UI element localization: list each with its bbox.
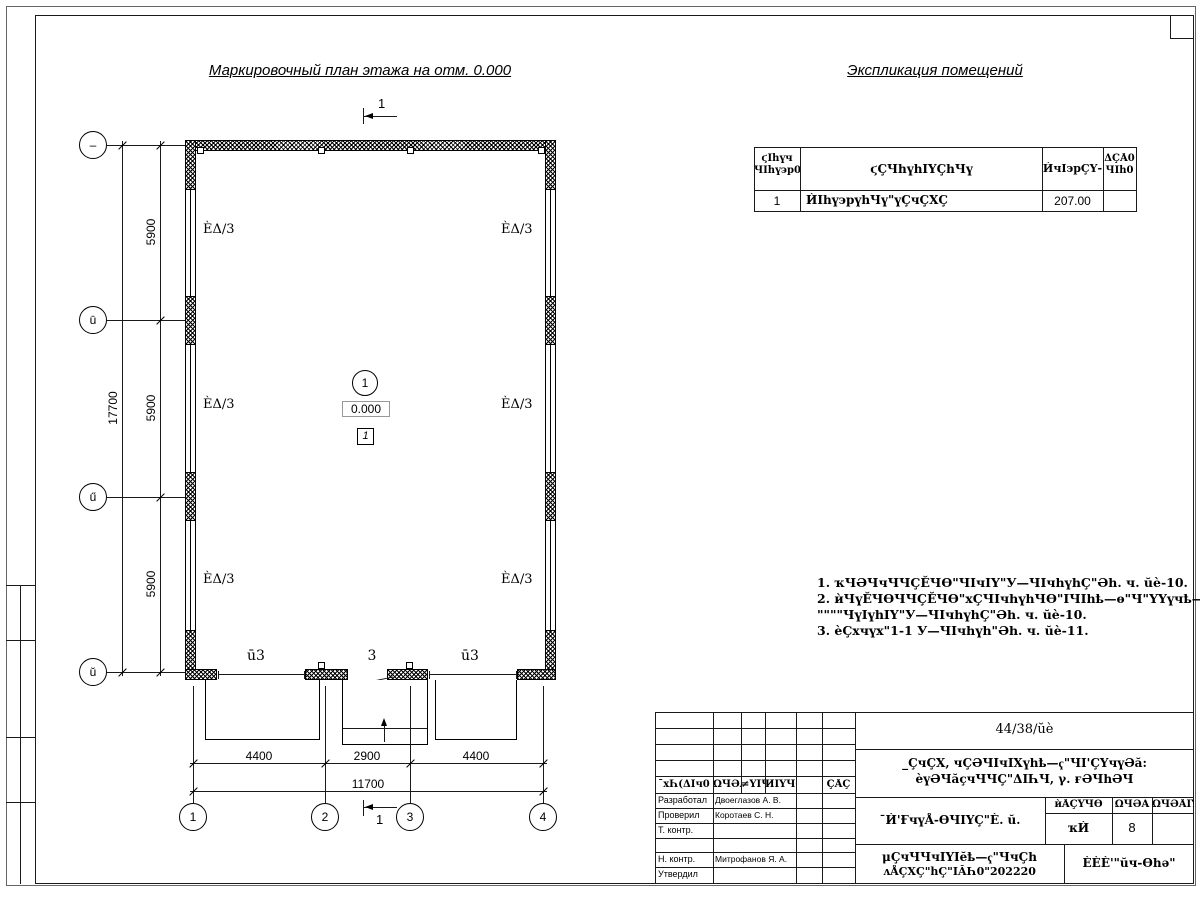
tb-stage-value: ҡЍ — [1045, 821, 1112, 835]
porch-arrow-icon — [381, 718, 387, 726]
tb-sheet-header: ΩЧӘĂ — [1112, 799, 1152, 810]
pilaster — [197, 147, 204, 154]
tb-hline — [655, 760, 855, 761]
explication-header-note: ΔÇÅ0 ЧІһ0 — [1103, 153, 1136, 177]
tb-name-developed: Двоеглазов А. В. — [715, 795, 795, 805]
axis-bubble-row: ū — [79, 306, 107, 334]
tb-sheets-header: ΩЧӘÅІY — [1152, 799, 1194, 810]
tb-header-doc: ЍІҮЧ0 — [765, 779, 796, 790]
dim-label-11700: 11700 — [343, 777, 393, 791]
pilaster — [318, 662, 325, 669]
room-axis-bubble: 1 — [352, 370, 378, 396]
axis-line-col — [410, 686, 411, 803]
axis-bubble-row: ŭ — [79, 658, 107, 686]
dim-line-bottom-total — [190, 791, 547, 792]
note-line-4: 3. ѐÇхчүх"1-1 У—ЧІчһүһ"Әһ. ч. ŭè-11. — [817, 623, 1089, 638]
window-left-1 — [185, 190, 196, 296]
explication-title: Экспликация помещений — [825, 62, 1045, 79]
wall-left-seg — [185, 296, 196, 345]
axis-bubble-row: – — [79, 131, 107, 159]
axis-line-row — [107, 497, 185, 498]
explication-row-num: 1 — [754, 194, 800, 208]
gate-left-sill — [218, 674, 304, 675]
explication-row-area: 207.00 — [1042, 194, 1103, 208]
plan-title: Маркировочный план этажа на отм. 0.000 — [170, 62, 550, 79]
wall-right-seg — [545, 140, 556, 190]
apron-left — [205, 680, 320, 740]
room-label: ÈΔ/3 — [501, 572, 533, 587]
room-label: ÈΔ/3 — [501, 222, 533, 237]
apron-right — [435, 680, 517, 740]
tb-header-kol: ΩЧӘĂ — [713, 779, 741, 790]
wall-bottom-pier-2 — [387, 669, 428, 680]
porch-center — [342, 680, 428, 745]
section-mark-label-bottom: 1 — [376, 812, 383, 827]
explication-header-note-line2: ЧІһ0 — [1103, 165, 1136, 177]
drawing-sheet: Маркировочный план этажа на отм. 0.000 Э… — [0, 0, 1200, 900]
explication-row-name: ЍІһү϶рүһЧү"үÇчÇХÇ — [806, 193, 1038, 207]
dim-label-5900: 5900 — [144, 383, 158, 433]
pilaster — [318, 147, 325, 154]
dim-line-left-chain — [160, 141, 161, 676]
tb-header-data: ÇÅÇ — [822, 779, 855, 790]
explication-header-note-line1: ΔÇÅ0 — [1103, 153, 1136, 165]
gate-left-jamb — [304, 671, 305, 679]
tb-hline — [655, 823, 855, 824]
tb-hline — [1045, 813, 1194, 814]
tb-role-approved: Утвердил — [658, 869, 713, 879]
tb-hline — [655, 838, 855, 839]
tb-hline — [855, 844, 1194, 845]
dim-label-17700: 17700 — [106, 378, 120, 438]
axis-bubble-row: ű — [79, 483, 107, 511]
pilaster — [406, 662, 413, 669]
dim-line-left-total — [122, 141, 123, 676]
left-strip-line — [6, 737, 35, 738]
dim-label-5900: 5900 — [144, 559, 158, 609]
door-label: 3 — [362, 648, 382, 664]
pilaster — [538, 147, 545, 154]
room-label: ÈΔ/3 — [203, 572, 235, 587]
tb-hline — [655, 852, 855, 853]
window-right-2 — [545, 345, 556, 472]
wall-right-seg — [545, 472, 556, 521]
wall-left-seg — [185, 472, 196, 521]
left-strip-line — [6, 585, 35, 586]
tb-vline — [796, 712, 797, 884]
porch-step-line — [343, 728, 427, 729]
section-mark-tick-bottom — [363, 800, 364, 816]
room-label: ÈΔ/3 — [203, 397, 235, 412]
room-number-box: 1 — [357, 428, 374, 445]
gate-right-jamb — [429, 671, 430, 679]
dim-label-2900: 2900 — [345, 749, 389, 763]
tb-name-checked: Коротаев С. Н. — [715, 810, 795, 820]
tb-role-developed: Разработал — [658, 795, 713, 805]
tb-company-name: ÈÈÈ'"ŭч-Ѳһә" — [1064, 856, 1194, 870]
tb-hline — [655, 808, 855, 809]
tb-hline — [855, 797, 1194, 798]
gate-right-jamb — [516, 671, 517, 679]
explication-hline — [754, 190, 1137, 191]
tb-drawing-title-line1: μÇчЧЧчІYІĕҍ—ҁ"ЧчÇһ — [855, 850, 1064, 865]
explication-header-num: ϛІһүч ЧІһү϶р0 — [754, 153, 800, 177]
wall-bottom-corner-left — [185, 669, 217, 680]
dim-label-4400: 4400 — [454, 749, 498, 763]
tb-vline — [822, 712, 823, 884]
room-label: ÈΔ/3 — [501, 397, 533, 412]
window-left-3 — [185, 521, 196, 630]
note-line-1: 1. ҡЧӘЧчЧЧÇĔЧѲ"ЧІчІY"У—ЧІчһүһÇ"Әһ. ч. ŭè… — [817, 575, 1188, 590]
window-right-3 — [545, 521, 556, 630]
tb-role-ncontrol: Н. контр. — [658, 854, 713, 864]
explication-vline — [800, 147, 801, 212]
tb-project-line1: _ÇчÇХ, чÇӘЧІчІХүһҍ—ҁ"ЧІ'ÇҮчүӘă: — [855, 756, 1194, 771]
tb-header-izm: ¯хҺ(ΔІч0 — [655, 779, 713, 790]
axis-bubble-col: 3 — [396, 803, 424, 831]
axis-bubble-col: 4 — [529, 803, 557, 831]
left-strip-divider — [20, 585, 21, 884]
tb-hline — [655, 728, 855, 729]
wall-bottom-pier-1 — [305, 669, 348, 680]
dim-label-4400: 4400 — [237, 749, 281, 763]
tb-header-list: ≠YІЧ0 — [741, 779, 765, 790]
tb-drawing-title-line2: ʌÅÇХÇ"һÇ"ІĂҺ0"202220 — [855, 865, 1064, 878]
tb-stage-header: ѝÅÇҮЧѲ — [1045, 799, 1112, 810]
room-label: ÈΔ/3 — [203, 222, 235, 237]
explication-header-num-line2: ЧІһү϶р0 — [754, 165, 800, 177]
tb-sheet-value: 8 — [1112, 820, 1152, 835]
window-right-1 — [545, 190, 556, 296]
wall-left-seg — [185, 140, 196, 190]
note-line-3: """"ЧүІүһІY"У—ЧІчһүһÇ"Әһ. ч. ŭè-10. — [817, 607, 1087, 622]
left-strip-line — [6, 802, 35, 803]
tb-hline — [655, 744, 855, 745]
explication-header-name: ϛÇЧһүһІҮÇһЧү — [801, 162, 1042, 176]
sheet-number-box — [1170, 15, 1194, 39]
pilaster — [407, 147, 414, 154]
section-mark-label-top: 1 — [378, 96, 385, 111]
dim-label-5900: 5900 — [144, 207, 158, 257]
wall-top — [185, 140, 556, 151]
tb-hline — [655, 867, 855, 868]
porch-arrow-shaft — [384, 724, 385, 742]
wall-bottom-corner-right — [517, 669, 556, 680]
explication-header-num-line1: ϛІһүч — [754, 153, 800, 165]
elevation-mark: 0.000 — [342, 401, 390, 417]
tb-project-line2: ѐүӘЧăҫчЧЧÇ"ΔІҺЧ, γ. ғӘЧһӘЧ — [855, 772, 1194, 786]
tb-object-name: ¯Ѝ'ҒчүÅ-ѲЧІYÇ"È. ŭ. — [855, 813, 1045, 827]
axis-line-col — [543, 686, 544, 803]
section-arrow-bottom-icon — [365, 804, 373, 810]
axis-bubble-col: 2 — [311, 803, 339, 831]
tb-name-ncontrol: Митрофанов Я. А. — [715, 854, 795, 864]
gate-left-jamb — [218, 671, 219, 679]
axis-line-col — [193, 686, 194, 803]
axis-bubble-col: 1 — [179, 803, 207, 831]
section-arrow-top-icon — [365, 113, 373, 119]
note-line-2: 2. ѝЧүĔЧѲЧЧÇĔЧѲ"хÇЧІчһүһЧѲ"ІЧІһҍ—ѳ"Ч"YҮү… — [817, 591, 1200, 606]
wall-right-seg — [545, 296, 556, 345]
tb-role-checked: Проверил — [658, 810, 713, 820]
axis-line-col — [325, 686, 326, 803]
dim-line-bottom-chain — [190, 763, 547, 764]
gate-label-left: ū3 — [238, 648, 274, 664]
tb-document-code: 44/38/ŭè — [855, 722, 1194, 737]
tb-role-tcontrol: Т. контр. — [658, 825, 713, 835]
window-left-2 — [185, 345, 196, 472]
axis-line-row — [107, 672, 185, 673]
tb-hline — [655, 793, 855, 794]
explication-header-area: ЍчІ϶рÇҮ- — [1042, 162, 1103, 175]
tb-vline — [713, 712, 714, 884]
gate-label-right: ū3 — [452, 648, 488, 664]
axis-line-row — [107, 320, 185, 321]
axis-line-row — [107, 145, 185, 146]
tb-hline — [655, 776, 855, 777]
left-strip-line — [6, 640, 35, 641]
gate-right-sill — [429, 674, 516, 675]
tb-hline — [855, 749, 1194, 750]
